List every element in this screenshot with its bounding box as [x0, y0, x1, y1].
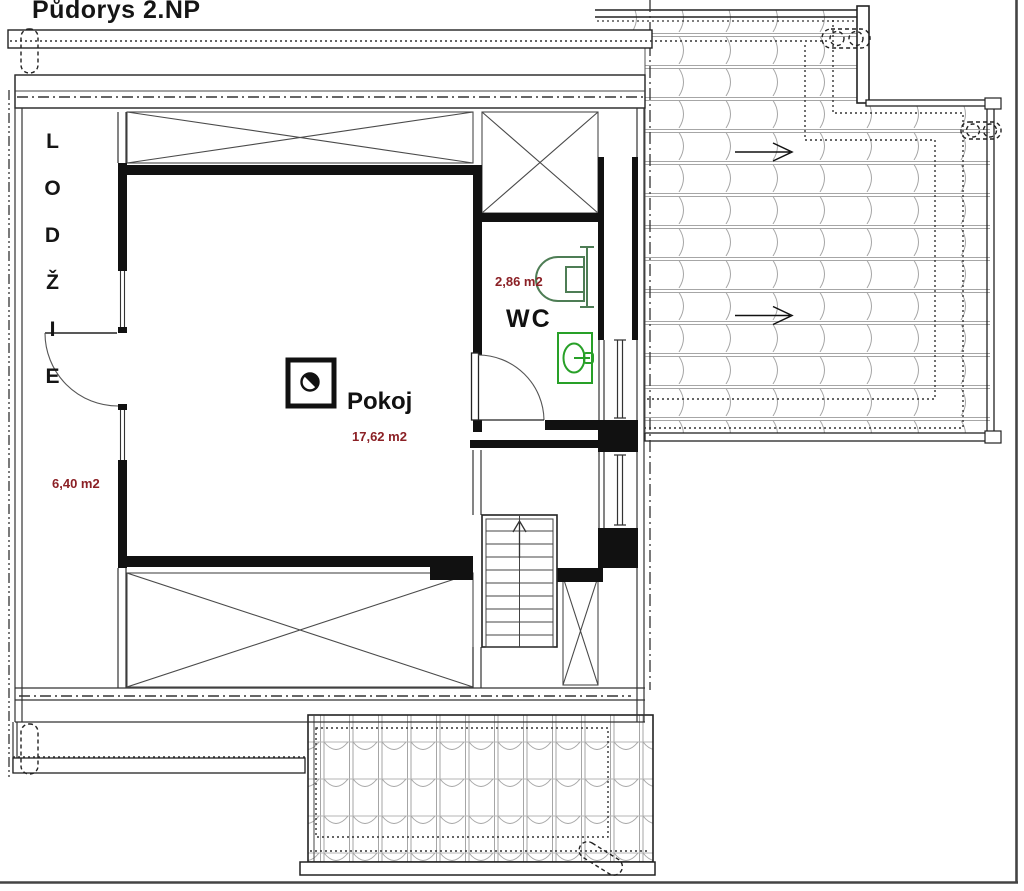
room-label-wc: WC — [506, 305, 552, 334]
bottom-roof-tiles — [308, 715, 653, 862]
room-right-wall — [473, 165, 482, 355]
floorplan-drawing — [0, 0, 1024, 891]
brace-panel — [127, 573, 473, 687]
bottom-roof — [300, 715, 655, 878]
area-label-loggia: 6,40 m2 — [52, 476, 100, 491]
room-label-loggia: LODŽIE — [40, 130, 64, 412]
bottom-eave-band — [13, 758, 305, 773]
right-roof-tiles — [595, 10, 990, 441]
top-eave-band — [8, 30, 652, 48]
chimney-icon — [288, 360, 334, 406]
right-outer-wall — [637, 108, 644, 722]
room-label-pokoj: Pokoj — [347, 388, 412, 416]
room-bottom-wall — [125, 556, 473, 567]
area-label-pokoj: 17,62 m2 — [352, 429, 407, 444]
right-roof — [595, 0, 1001, 690]
plan-title: Půdorys 2.NP — [32, 0, 201, 25]
floorplan-page: Půdorys 2.NP LODŽIE 6,40 m2 Pokoj 17,62 … — [0, 0, 1024, 891]
toilet-icon — [536, 247, 594, 307]
door-swing — [472, 353, 545, 420]
area-label-wc: 2,86 m2 — [495, 274, 543, 289]
brace-panel — [563, 577, 598, 685]
left-outer-wall — [15, 75, 22, 722]
room-top-wall — [125, 165, 482, 175]
brace-panel — [482, 112, 598, 213]
window — [121, 271, 125, 460]
stairs-icon — [482, 515, 557, 647]
sink-icon — [558, 333, 593, 383]
brace-panel — [127, 112, 473, 163]
